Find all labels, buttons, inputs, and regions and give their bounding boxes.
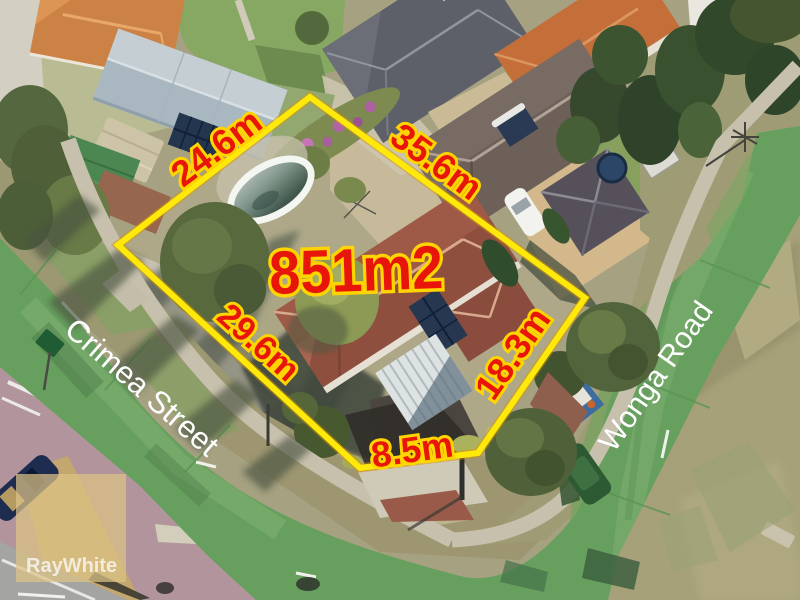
svg-text:RayWhite: RayWhite: [26, 555, 117, 577]
svg-text:851m2: 851m2: [268, 233, 444, 307]
